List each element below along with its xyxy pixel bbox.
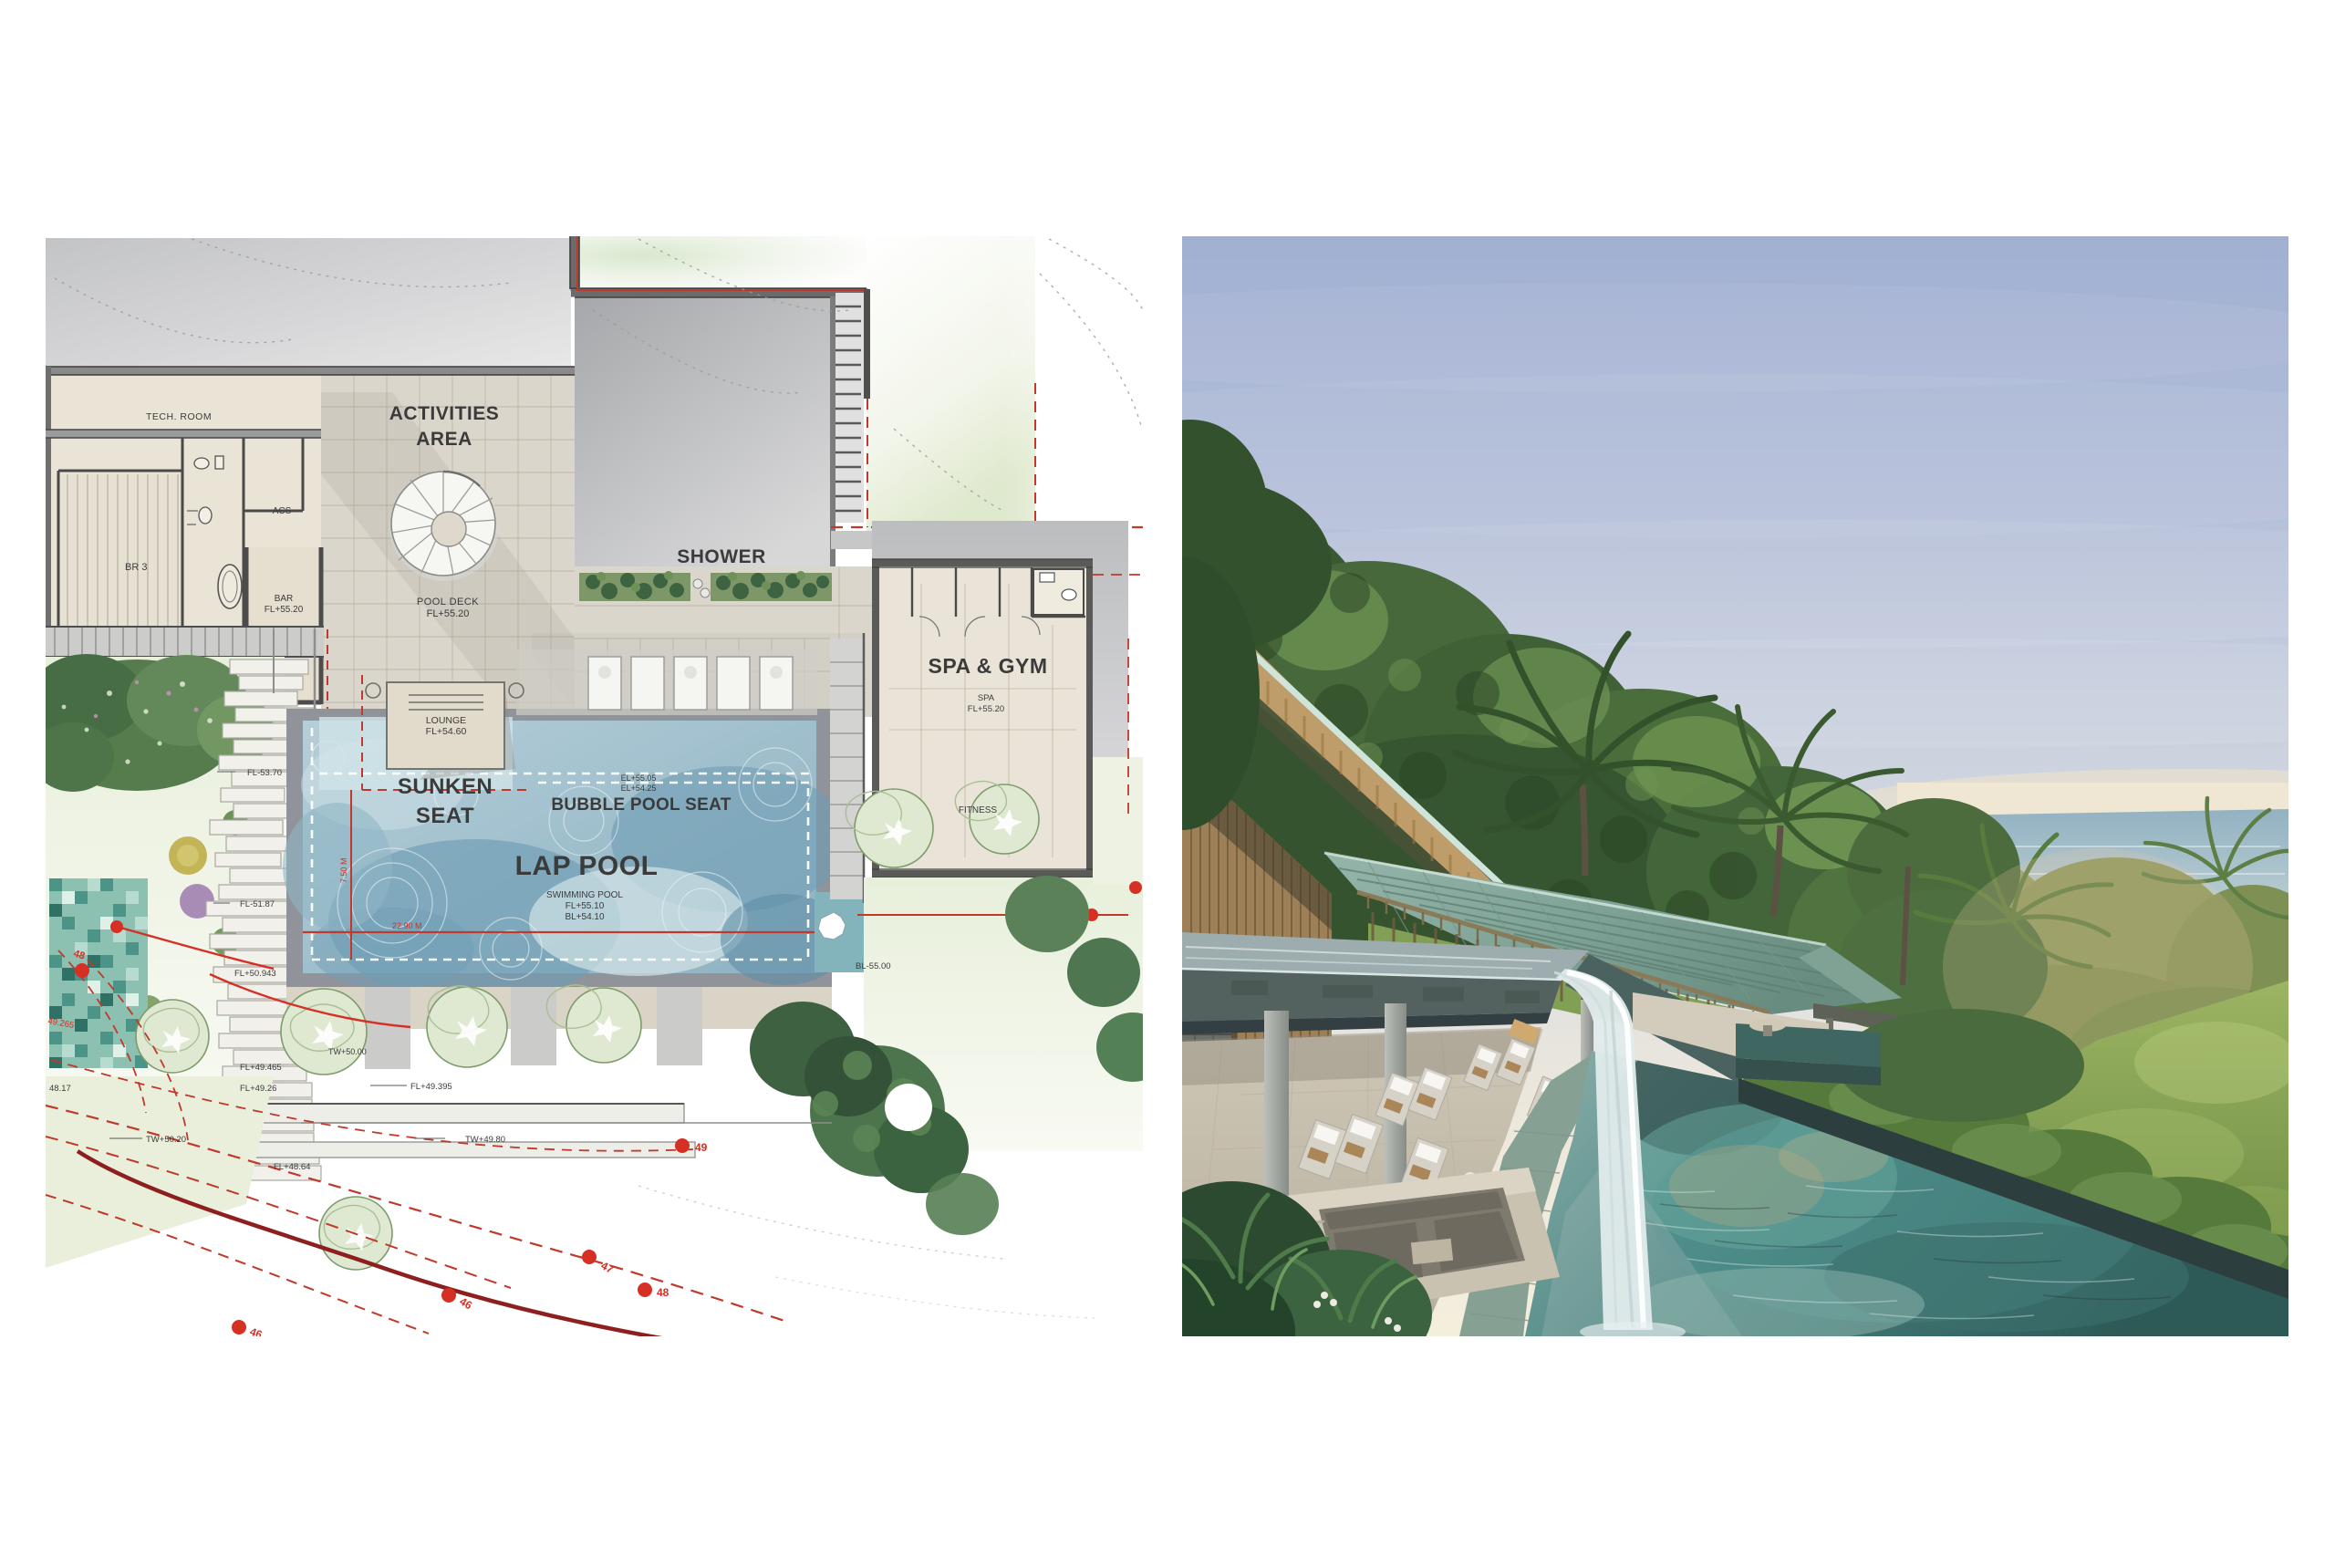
svg-text:FL+54.60: FL+54.60	[426, 726, 467, 737]
svg-text:AREA: AREA	[416, 429, 472, 450]
svg-text:SEAT: SEAT	[416, 804, 474, 828]
svg-text:BL-55.00: BL-55.00	[856, 961, 891, 971]
svg-text:49: 49	[695, 1141, 708, 1154]
svg-text:EL+54.25: EL+54.25	[621, 784, 657, 793]
svg-text:FL+49.26: FL+49.26	[240, 1084, 276, 1094]
svg-text:22.90 M: 22.90 M	[392, 921, 422, 930]
svg-text:BR 3: BR 3	[125, 562, 147, 573]
svg-text:ACTIVITIES: ACTIVITIES	[389, 403, 500, 424]
svg-text:TW+49.80: TW+49.80	[465, 1135, 505, 1145]
svg-text:POOL DECK: POOL DECK	[417, 597, 479, 607]
svg-text:BL+54.10: BL+54.10	[565, 912, 605, 922]
svg-text:FL+55.20: FL+55.20	[968, 704, 1004, 714]
svg-text:ACS: ACS	[273, 506, 292, 516]
svg-text:TW+50.20: TW+50.20	[146, 1135, 186, 1145]
svg-text:FL+49.395: FL+49.395	[410, 1082, 452, 1092]
svg-text:SPA & GYM: SPA & GYM	[928, 654, 1047, 678]
svg-text:EL+55.05: EL+55.05	[621, 774, 657, 783]
svg-text:BUBBLE POOL SEAT: BUBBLE POOL SEAT	[551, 795, 731, 815]
svg-text:LAP POOL: LAP POOL	[515, 851, 659, 881]
svg-text:FL+55.20: FL+55.20	[265, 605, 304, 615]
svg-text:SPA: SPA	[978, 693, 995, 703]
svg-text:FL+55.10: FL+55.10	[566, 901, 605, 911]
svg-text:48: 48	[657, 1286, 669, 1299]
svg-text:FL+55.20: FL+55.20	[427, 608, 470, 619]
svg-text:FL+49.465: FL+49.465	[240, 1063, 282, 1073]
svg-text:FITNESS: FITNESS	[959, 805, 998, 815]
svg-text:LOUNGE: LOUNGE	[426, 715, 466, 726]
svg-text:TECH. ROOM: TECH. ROOM	[146, 411, 212, 422]
svg-text:47: 47	[599, 1259, 617, 1276]
svg-text:FL+48.64: FL+48.64	[274, 1162, 310, 1172]
svg-text:BAR: BAR	[275, 594, 294, 604]
svg-text:FL-51.87: FL-51.87	[240, 899, 275, 909]
svg-text:FL+50.943: FL+50.943	[234, 969, 276, 979]
svg-text:7.50 M: 7.50 M	[339, 857, 348, 883]
svg-text:FL-53.70: FL-53.70	[247, 768, 282, 778]
svg-text:SWIMMING POOL: SWIMMING POOL	[546, 890, 623, 900]
svg-text:TW+50.00: TW+50.00	[328, 1047, 367, 1056]
svg-text:SHOWER: SHOWER	[677, 546, 766, 567]
svg-text:48.17: 48.17	[49, 1084, 71, 1094]
svg-text:SUNKEN: SUNKEN	[398, 774, 493, 799]
